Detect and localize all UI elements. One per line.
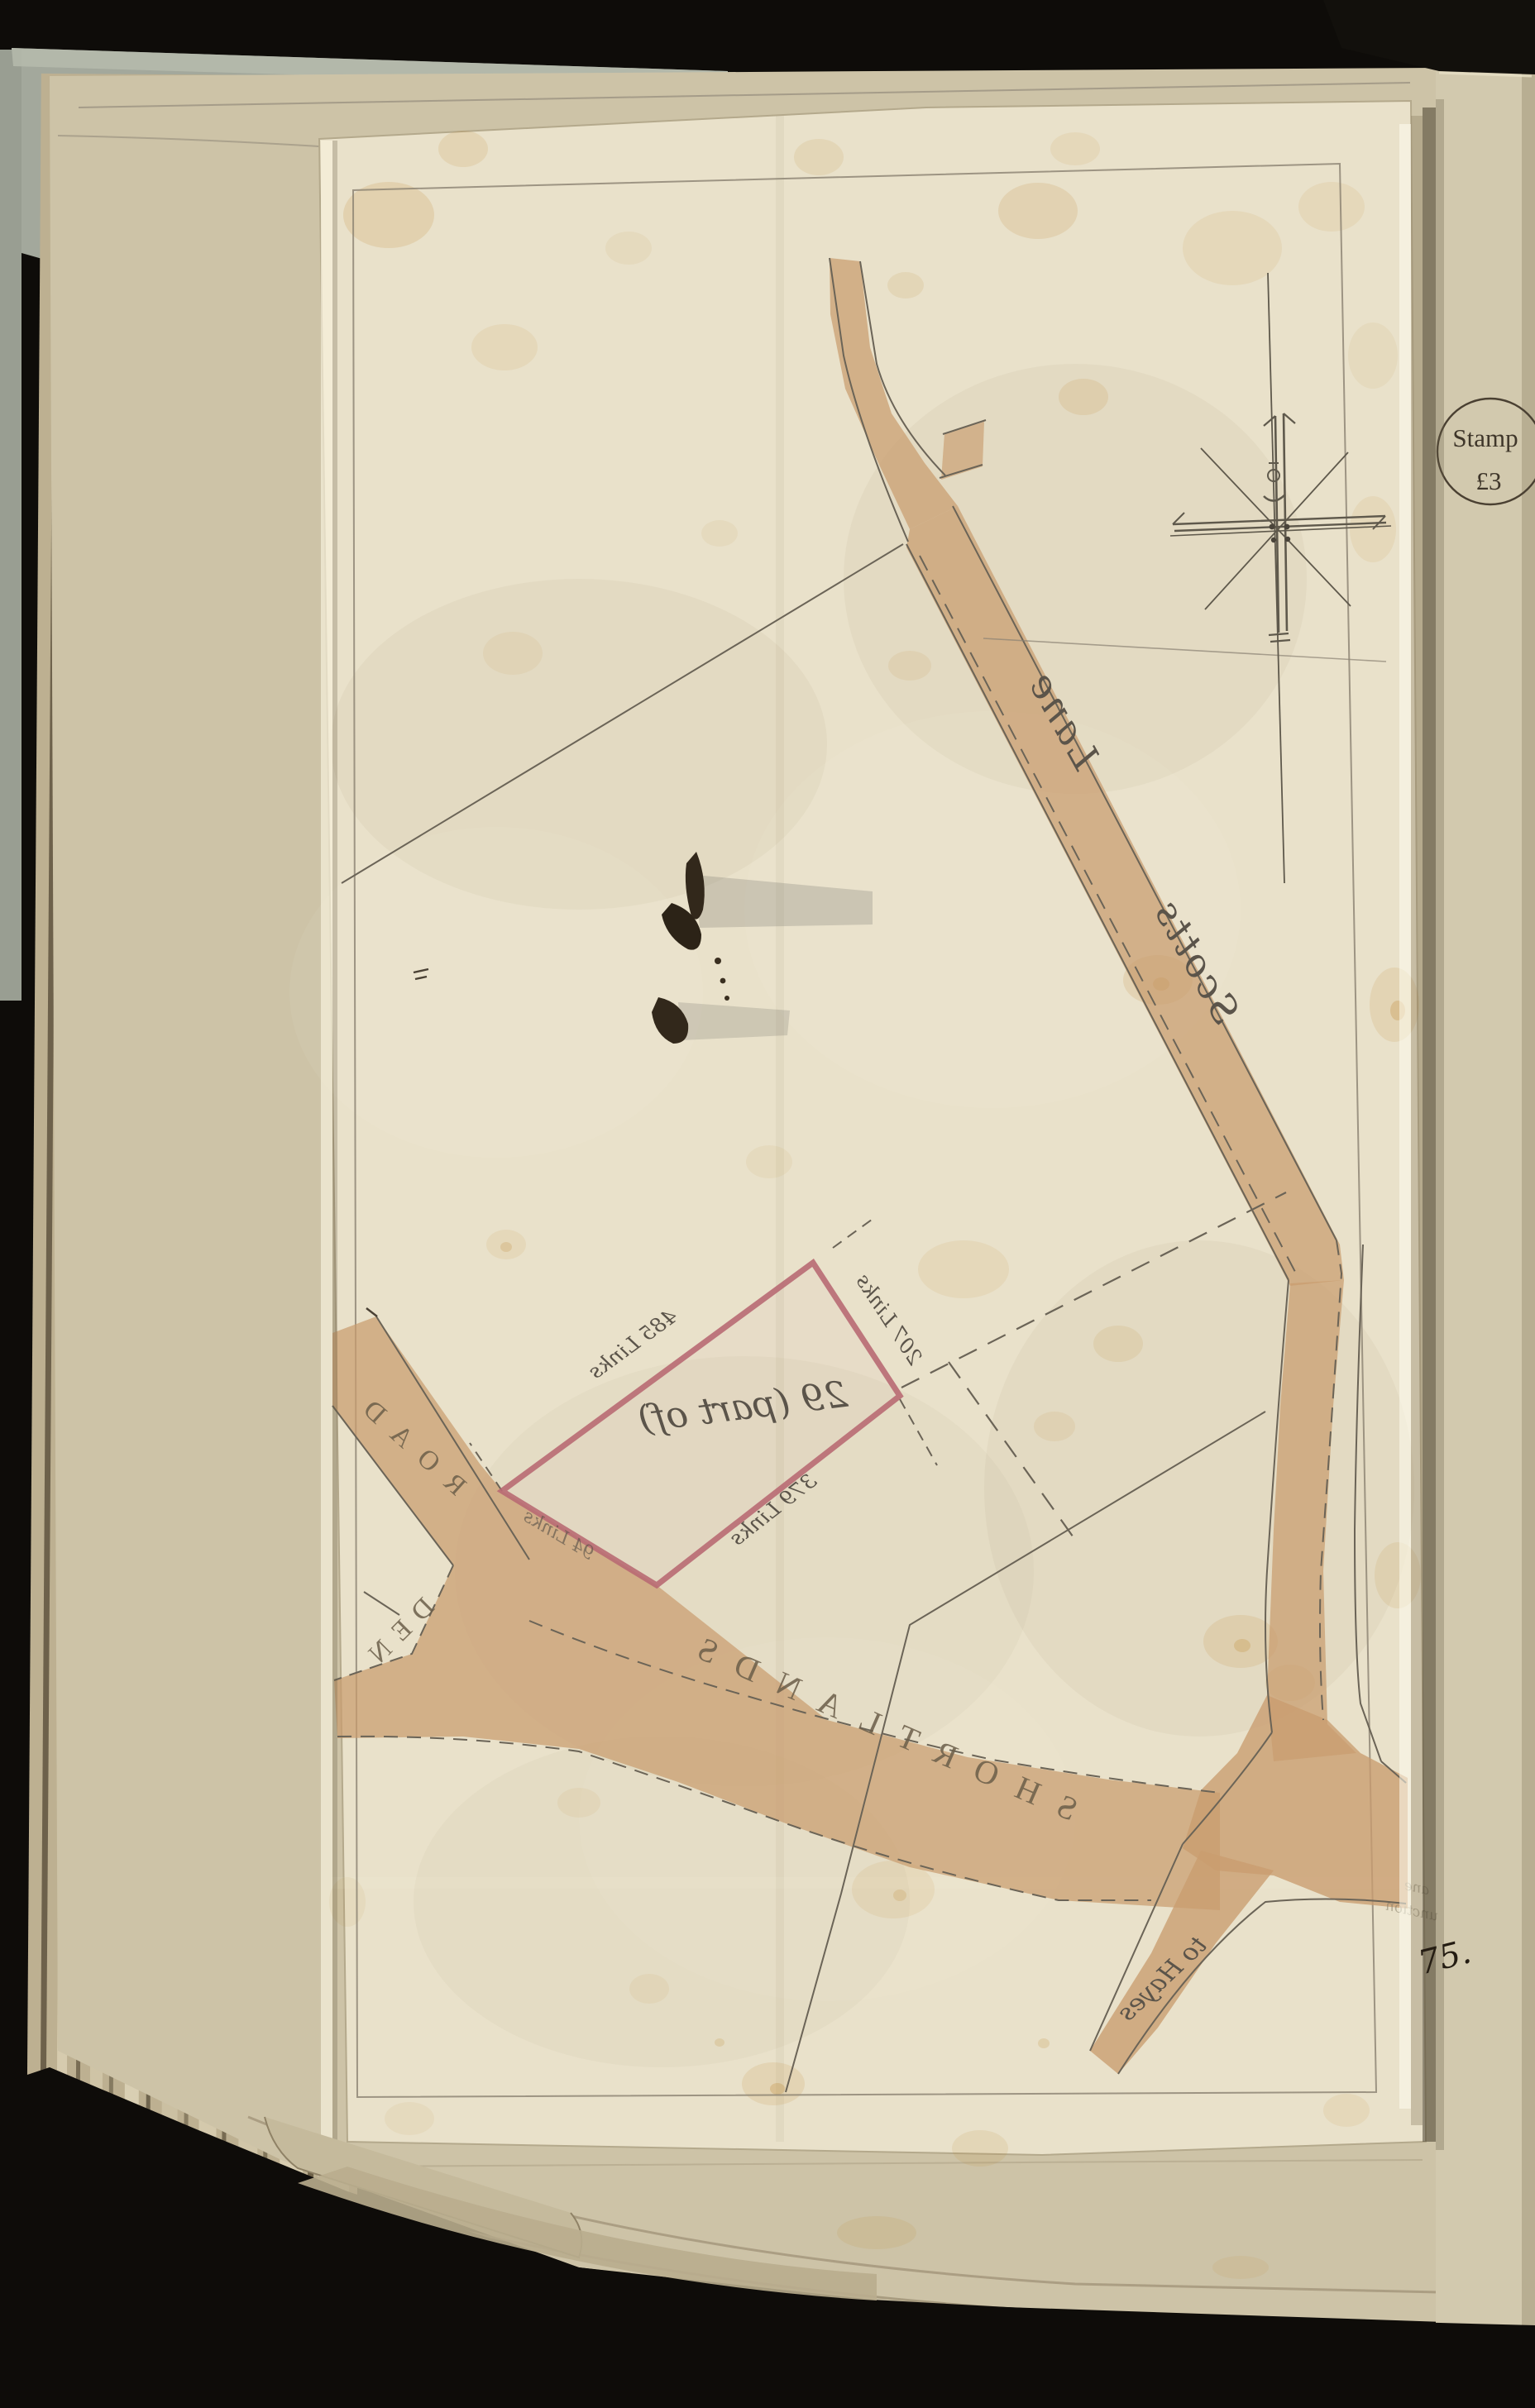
album-right-page [1436,48,1535,2363]
stamp-word: Stamp [1452,423,1518,452]
photographed-album-page: Stamp £3 [0,0,1535,2408]
stamp-value: £3 [1476,466,1502,495]
